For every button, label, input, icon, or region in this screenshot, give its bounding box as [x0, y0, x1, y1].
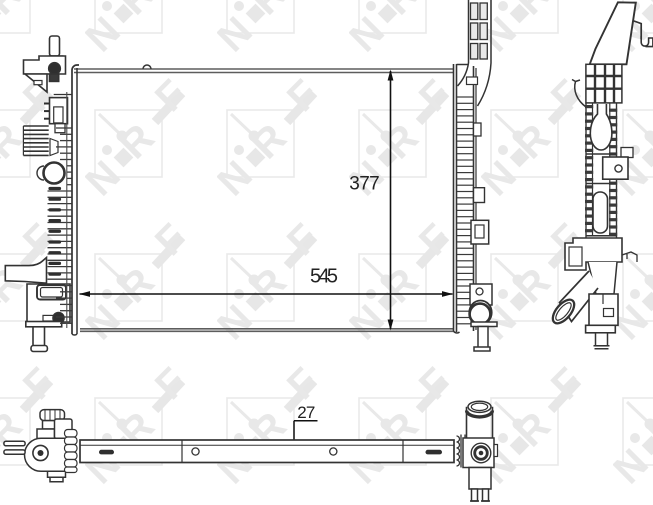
- svg-text:377: 377: [349, 174, 380, 195]
- svg-text:27: 27: [297, 403, 315, 422]
- svg-text:545: 545: [310, 266, 338, 288]
